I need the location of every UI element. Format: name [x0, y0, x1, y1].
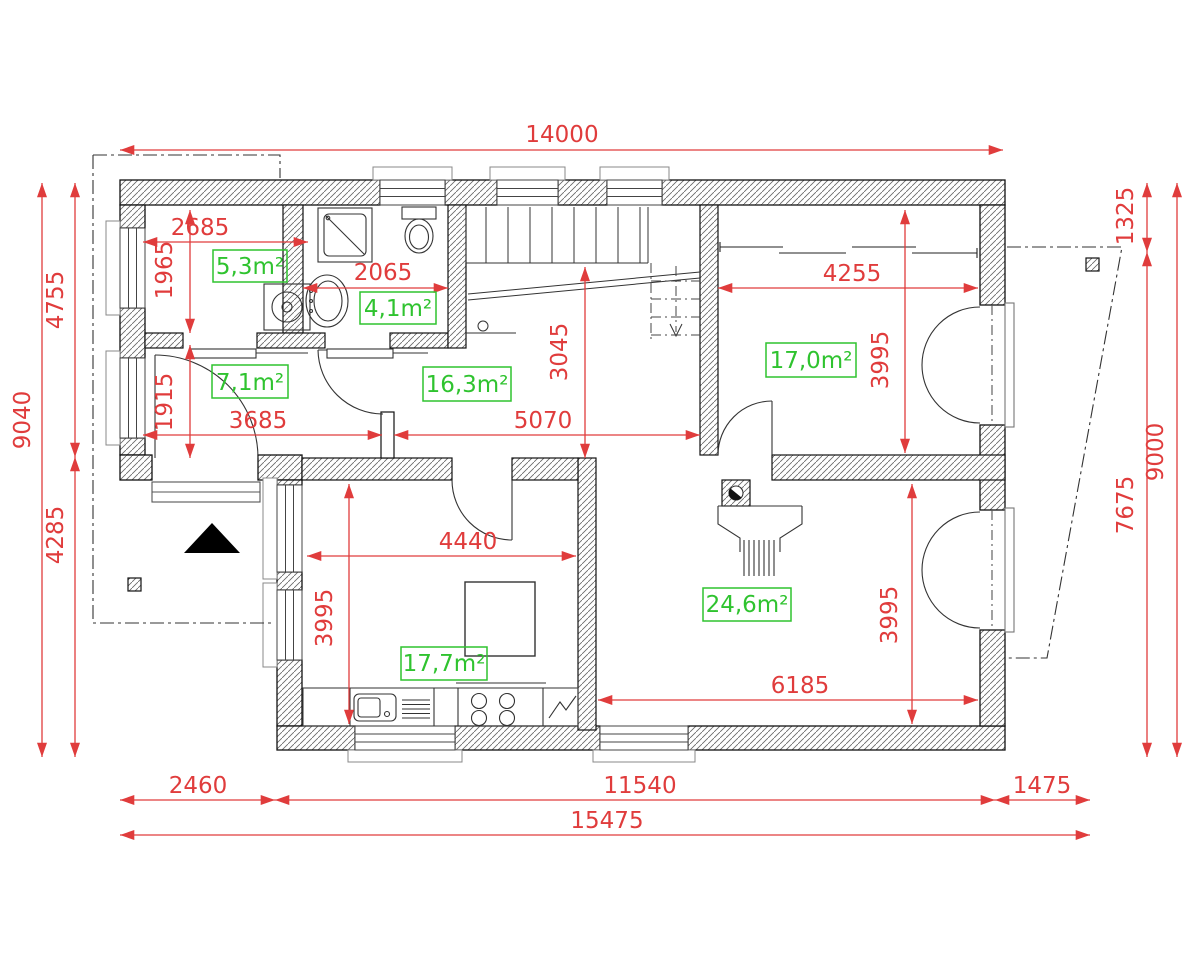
dim-bedroom-height: 3995: [868, 331, 894, 390]
area-label-storage: 5,3m²: [213, 250, 287, 282]
wall-top: [445, 180, 497, 205]
area-storage: 5,3m²: [216, 254, 284, 280]
area-hall-small: 7,1m²: [216, 370, 284, 396]
area-label-hall: 16,3m²: [423, 367, 511, 401]
area-label-bathroom: 4,1m²: [360, 292, 436, 324]
dim-right-total: 9000: [1143, 423, 1169, 482]
dim-left-lower: 4285: [43, 506, 69, 565]
french-door-bedroom: [922, 303, 1014, 427]
bedroom-wardrobe: [720, 242, 977, 258]
area-label-hall-small: 7,1m²: [212, 365, 288, 398]
window-bottom-1: [348, 726, 462, 762]
window-kitchen-1: [263, 478, 302, 579]
dim-bottom-right: 1475: [1013, 773, 1072, 799]
area-label-kitchen: 17,7m²: [401, 647, 487, 680]
window-top-1: [373, 167, 452, 205]
dim-left-total: 9040: [10, 391, 36, 450]
wall-kitchen-top: [302, 458, 452, 480]
dishwasher-symbol: [549, 696, 576, 718]
dim-bath-width: 2065: [354, 260, 413, 286]
wall-left: [120, 205, 145, 228]
site-outline: [93, 155, 1122, 658]
wall-left: [120, 308, 145, 358]
french-door-living: [922, 508, 1014, 632]
floor-plan-page: 14000 9040 4755 4285 9000 1325 7675 2460…: [0, 0, 1200, 960]
wall-right: [980, 205, 1005, 305]
toilet: [402, 207, 436, 253]
dim-hall-height: 3045: [547, 323, 573, 382]
window-bottom-2: [593, 726, 695, 762]
hall-small-door: [318, 350, 383, 414]
area-bedroom: 17,0m²: [770, 348, 853, 374]
wall-hall-living: [772, 455, 1005, 480]
floor-plan-drawing: 14000 9040 4755 4285 9000 1325 7675 2460…: [0, 0, 1200, 960]
stairs-upper-flight: [651, 263, 700, 343]
wall-kitchen-top: [512, 458, 578, 480]
window-top-2: [490, 167, 565, 205]
wall-stairs-bedroom: [700, 205, 718, 455]
dim-kitchen-height: 3995: [312, 589, 338, 648]
kitchen-island: [465, 582, 535, 656]
terrace-outline-right: [1007, 247, 1122, 658]
dim-left-upper: 4755: [43, 271, 69, 330]
dim-hall-small-width: 3685: [229, 408, 288, 434]
dim-living-width: 6185: [771, 673, 830, 699]
wall-right: [980, 630, 1005, 726]
kitchen-sink: [354, 694, 430, 721]
dim-right-lower: 7675: [1113, 476, 1139, 535]
window-left-1: [106, 221, 145, 315]
area-kitchen: 17,7m²: [403, 651, 486, 677]
porch-outline-top: [93, 155, 280, 178]
kitchen-hob: [472, 694, 515, 726]
wall-kitchen-left: [277, 572, 302, 590]
dim-hall-small-height: 1915: [152, 373, 178, 432]
window-kitchen-2: [263, 583, 302, 667]
dim-bottom-total: 15475: [570, 808, 643, 834]
terrace-post: [1086, 258, 1099, 271]
entrance-marker-triangle: [184, 523, 240, 553]
bedroom-door: [718, 401, 772, 455]
wall-kitchen-living: [578, 458, 596, 730]
dim-hall-width: 5070: [514, 408, 573, 434]
staircase: [466, 207, 700, 343]
wall-top: [558, 180, 607, 205]
window-top-3: [600, 167, 669, 205]
wall-top: [662, 180, 1005, 205]
dim-bottom-left: 2460: [169, 773, 228, 799]
wall-bottom: [688, 726, 1005, 750]
wall-bath-bottom: [390, 333, 448, 348]
window-left-2: [106, 351, 145, 445]
dim-living-height: 3995: [877, 586, 903, 645]
dim-storage-height: 1965: [152, 241, 178, 300]
wall-bottom: [277, 726, 355, 750]
kitchen-counter: [303, 683, 578, 726]
dim-right-upper: 1325: [1113, 187, 1139, 246]
dim-storage-width: 2685: [171, 215, 230, 241]
area-label-living: 24,6m²: [703, 588, 791, 621]
porch-post: [128, 578, 141, 591]
area-hall: 16,3m²: [426, 372, 509, 398]
storage-door: [190, 349, 308, 358]
wall-storage-bottom: [145, 333, 183, 348]
wall-top: [120, 180, 380, 205]
dim-kitchen-width: 4440: [439, 529, 498, 555]
wall-entrance: [258, 455, 302, 480]
area-label-bedroom: 17,0m²: [766, 343, 856, 377]
washbasin: [306, 275, 348, 327]
wall-entrance: [120, 455, 152, 480]
dim-top-total: 14000: [525, 122, 598, 148]
wall-bath-stairs: [448, 205, 466, 348]
area-living: 24,6m²: [706, 592, 789, 618]
wall-kitchen-left: [277, 480, 302, 485]
dim-bottom-middle: 11540: [603, 773, 676, 799]
wall-kitchen-left: [277, 660, 302, 726]
area-bathroom: 4,1m²: [364, 296, 432, 322]
wall-left: [120, 438, 145, 455]
dim-bedroom-width: 4255: [823, 261, 882, 287]
wall-stub-hall: [381, 412, 394, 458]
stairs-newel: [478, 321, 488, 331]
bathroom-door: [327, 349, 428, 358]
wall-storage-bottom: [257, 333, 325, 348]
shower: [318, 208, 372, 262]
